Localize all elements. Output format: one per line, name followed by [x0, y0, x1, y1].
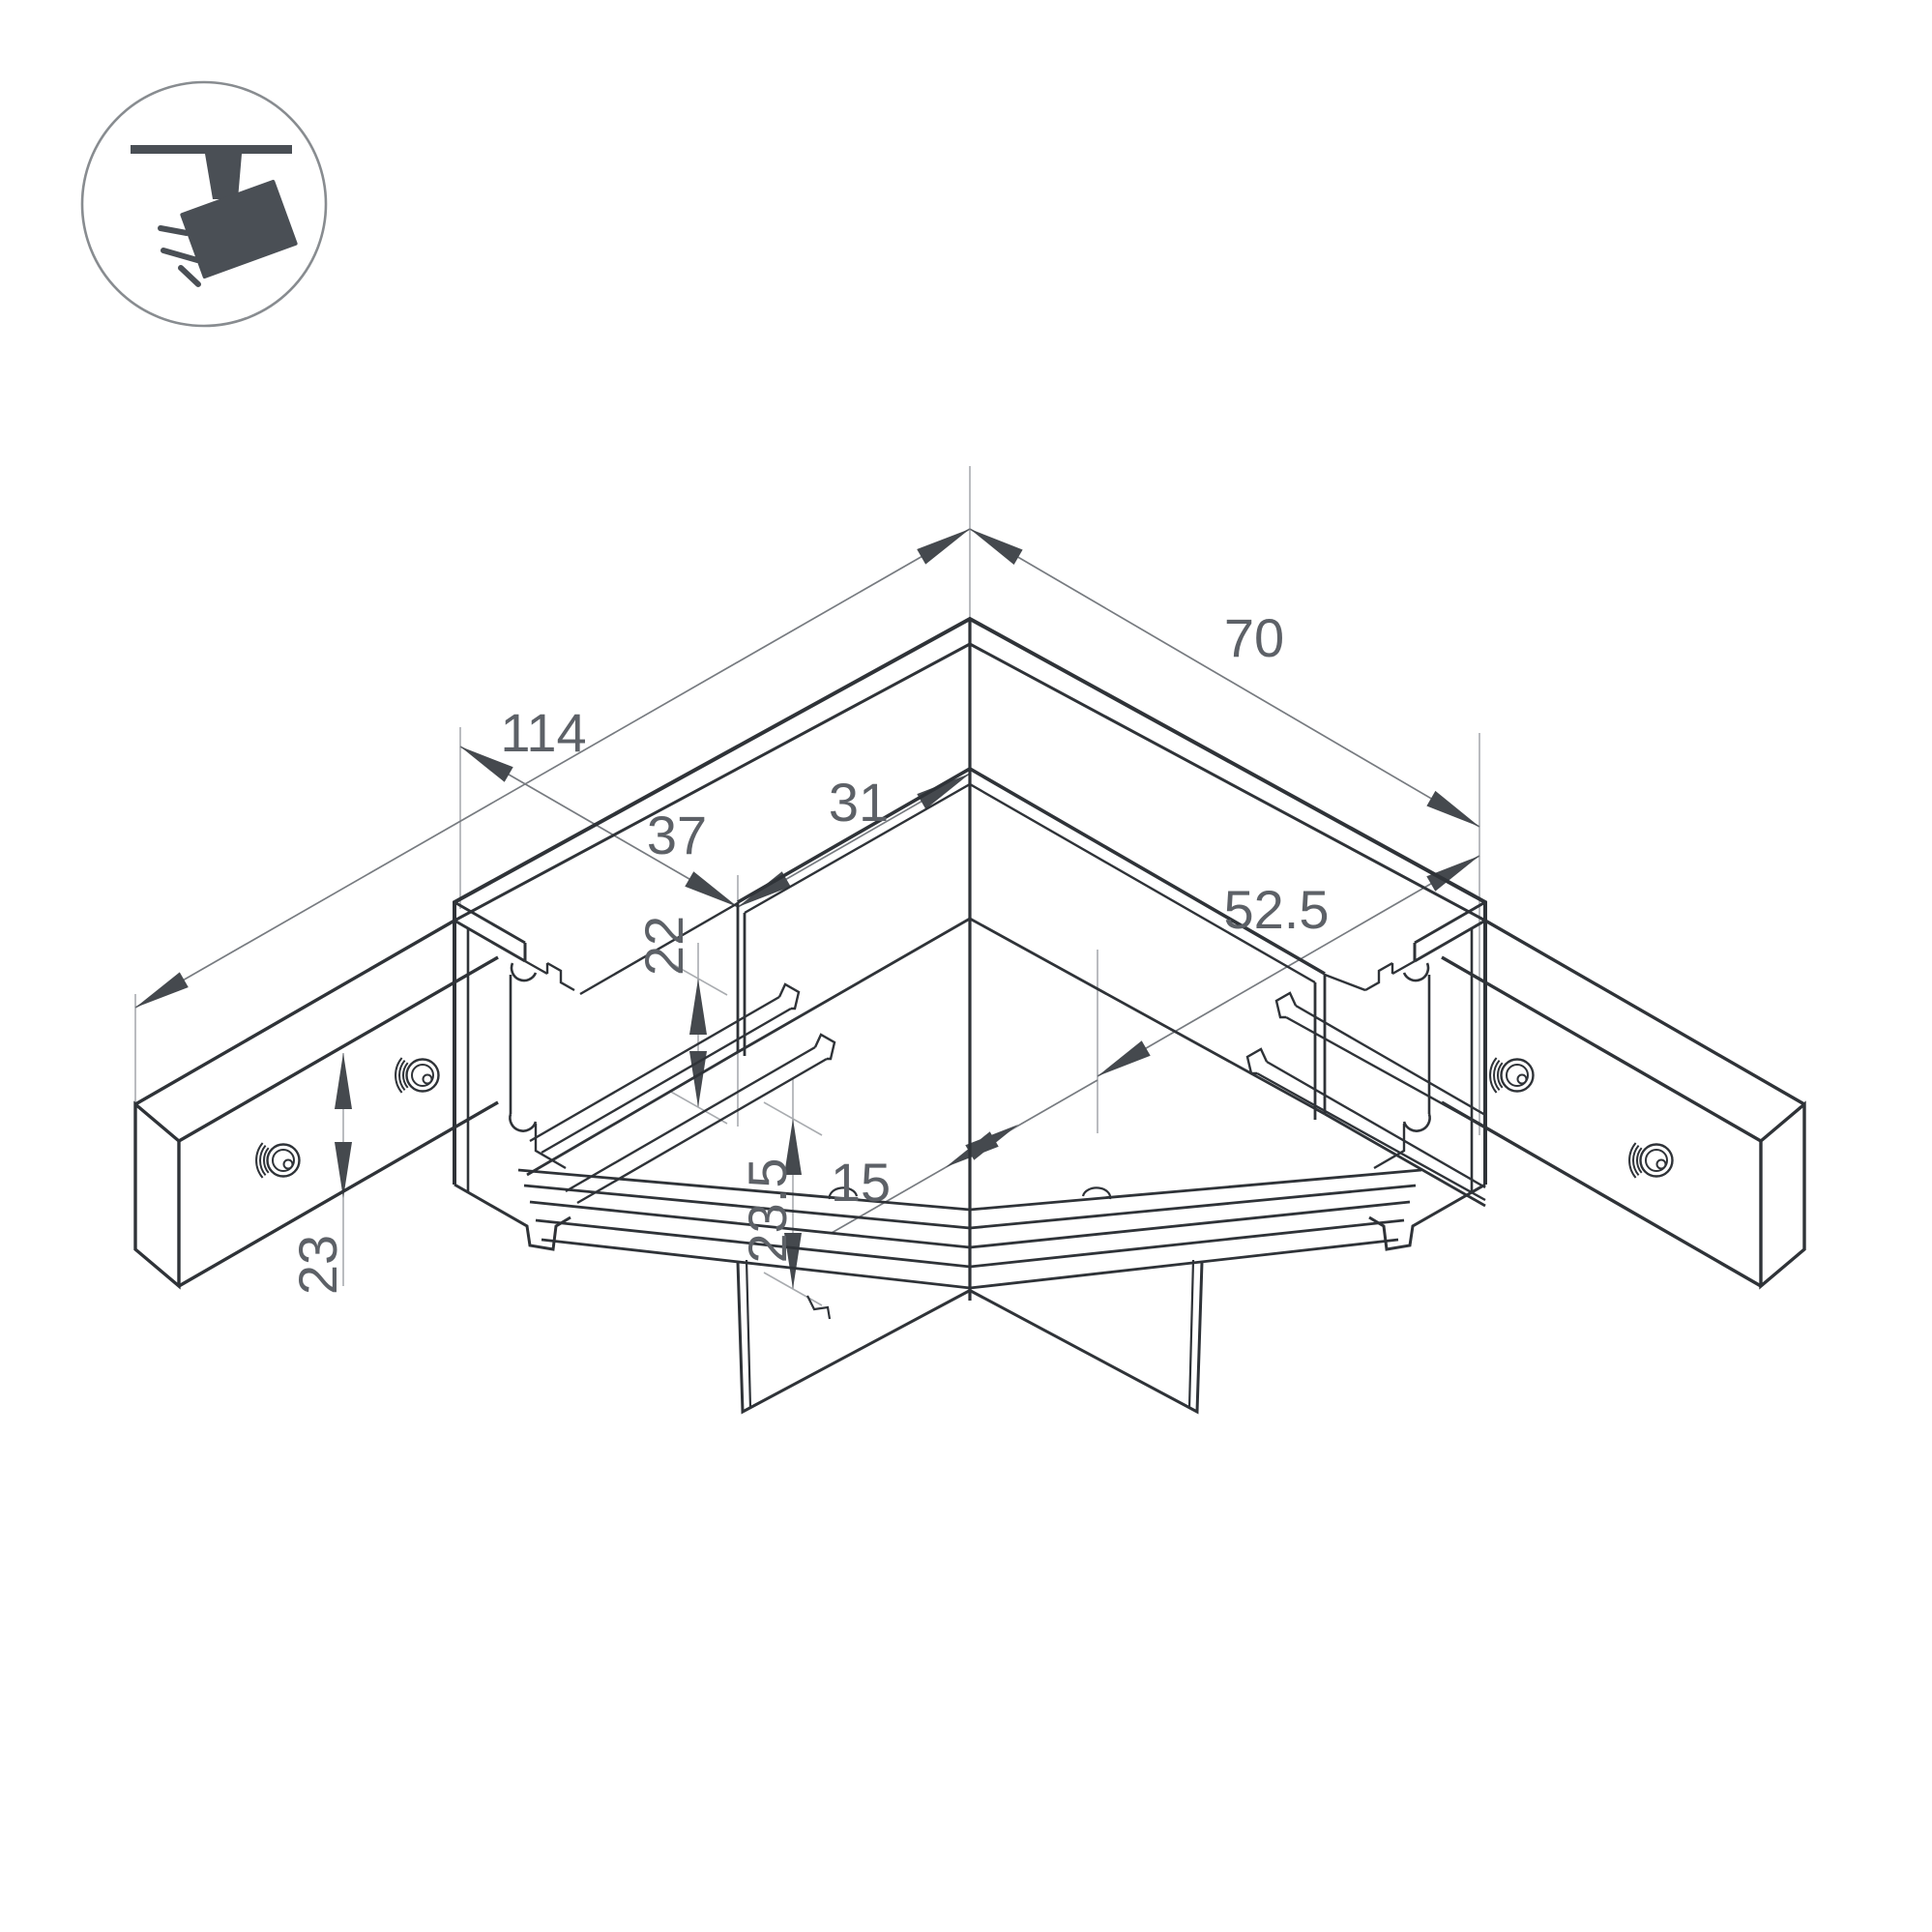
right-profile-cut-face: [1325, 902, 1485, 1249]
track-rail-shape: [131, 145, 292, 154]
channel-rails: [527, 984, 1485, 1206]
screw: [1629, 1143, 1672, 1178]
right-end-plate: [1442, 921, 1804, 1286]
corner-body-top-edge: [738, 769, 1325, 974]
corner-body-bottom-edge: [738, 919, 1325, 1114]
dimension-label-15: 15: [831, 1152, 891, 1213]
dimension-label-70: 70: [1224, 607, 1284, 668]
screw: [395, 1058, 438, 1093]
dimension-label-23-5: 23.5: [737, 1158, 798, 1264]
profile-structure: [135, 619, 1804, 1412]
left-end-plate: [135, 921, 498, 1286]
dimension-label-22: 22: [633, 916, 694, 976]
dimension-label-52-5: 52.5: [1224, 879, 1330, 940]
dimension-label-37: 37: [647, 805, 707, 865]
dimension-label-31: 31: [829, 772, 889, 833]
dim-line-114: [135, 529, 970, 1008]
corner-connector-drawing: 114 70 37 31 52.5 15 22 23.5 23: [0, 0, 1932, 1932]
screw: [256, 1143, 299, 1178]
screw: [1490, 1058, 1533, 1093]
badge-circle: [82, 82, 326, 326]
technical-drawing-page: 114 70 37 31 52.5 15 22 23.5 23: [0, 0, 1932, 1932]
dimension-label-114: 114: [500, 702, 586, 763]
product-type-badge: [82, 82, 326, 326]
dimension-label-23: 23: [287, 1235, 348, 1295]
